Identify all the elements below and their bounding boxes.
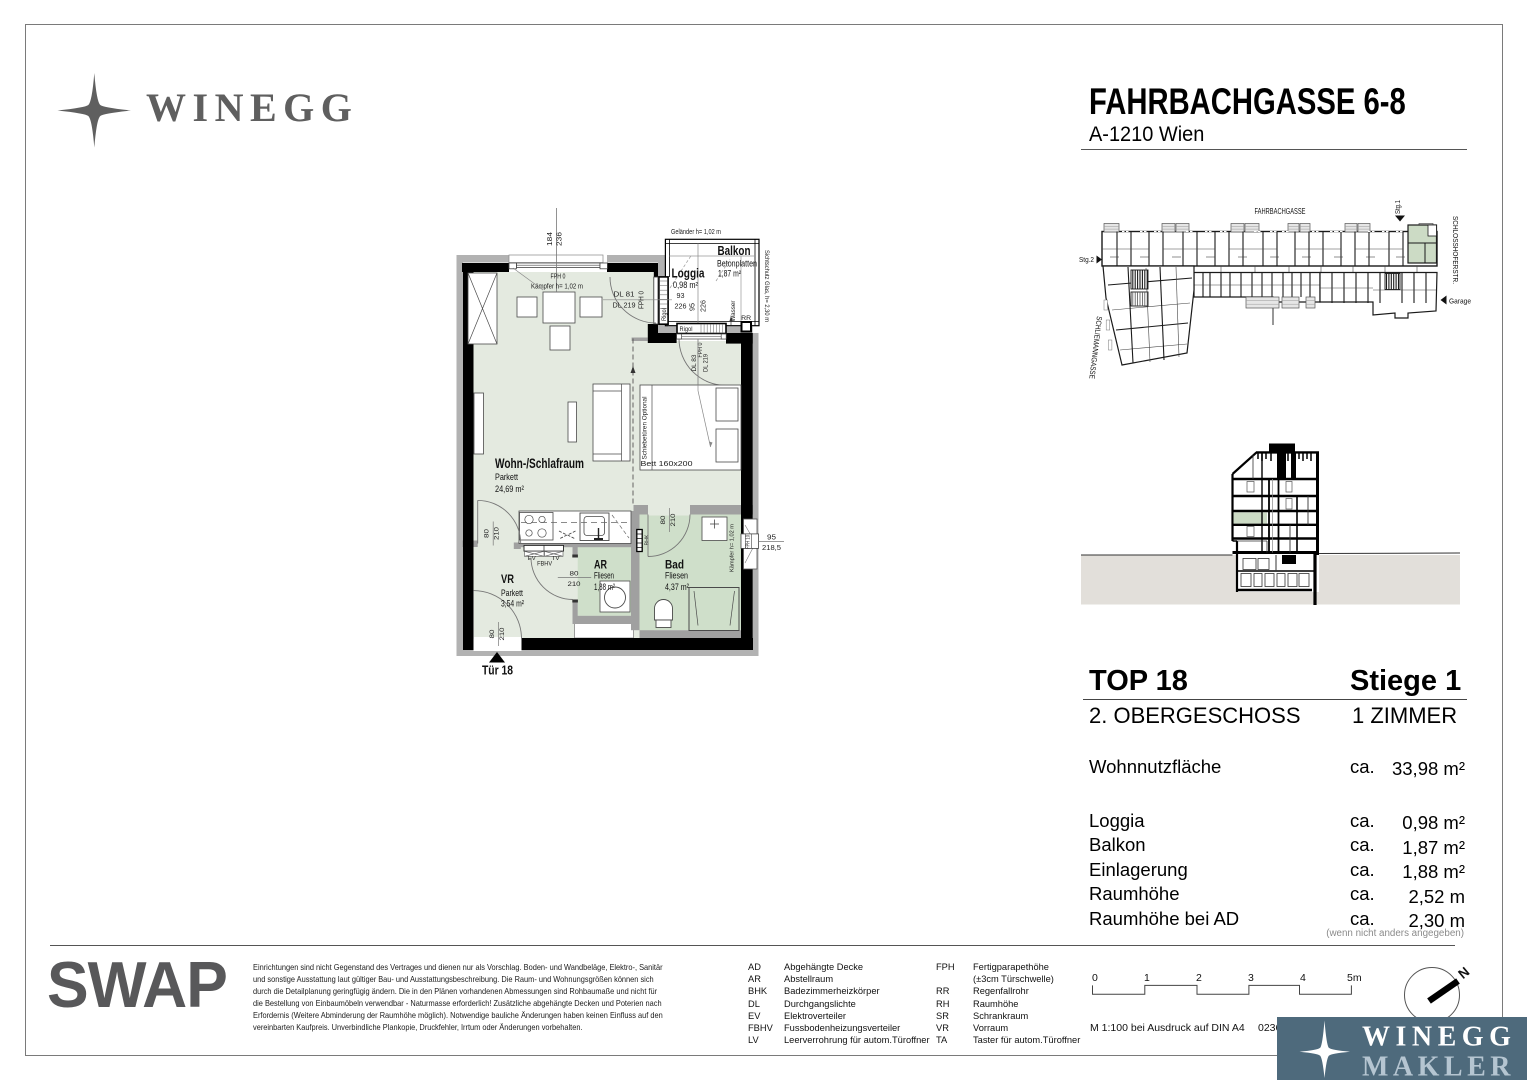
svg-text:95: 95 bbox=[690, 303, 697, 311]
svg-text:DL 219: DL 219 bbox=[613, 303, 636, 310]
svg-text:Loggia: Loggia bbox=[672, 266, 706, 281]
svg-text:218,5: 218,5 bbox=[762, 545, 781, 552]
svg-text:4: 4 bbox=[1300, 972, 1306, 984]
svg-text:226: 226 bbox=[675, 304, 687, 311]
svg-text:Sichtschutz Glas, h= 2,30 m: Sichtschutz Glas, h= 2,30 m bbox=[763, 250, 770, 322]
svg-text:80: 80 bbox=[570, 571, 579, 578]
svg-text:WINEGG: WINEGG bbox=[1362, 1022, 1516, 1053]
svg-text:210: 210 bbox=[499, 627, 506, 640]
svg-text:FBHV: FBHV bbox=[537, 562, 552, 568]
svg-text:Fliesen: Fliesen bbox=[665, 571, 688, 582]
svg-text:RR: RR bbox=[741, 315, 751, 322]
svg-text:Rigol: Rigol bbox=[680, 327, 693, 333]
svg-text:EV: EV bbox=[528, 556, 536, 562]
svg-text:Stg.2: Stg.2 bbox=[1079, 257, 1094, 264]
svg-text:Wasser: Wasser bbox=[731, 301, 737, 322]
svg-text:184: 184 bbox=[547, 232, 554, 246]
svg-text:4,37 m²: 4,37 m² bbox=[665, 582, 689, 593]
svg-text:BHK: BHK bbox=[645, 534, 651, 545]
svg-text:Kämpfer h= 1,02 m: Kämpfer h= 1,02 m bbox=[730, 524, 736, 572]
svg-text:N: N bbox=[1455, 964, 1472, 982]
svg-text:Garage: Garage bbox=[1449, 297, 1471, 306]
svg-text:Bett 160x200: Bett 160x200 bbox=[641, 461, 693, 468]
svg-text:DL 219: DL 219 bbox=[703, 354, 710, 372]
svg-text:80: 80 bbox=[660, 515, 667, 524]
svg-text:226: 226 bbox=[701, 300, 708, 312]
svg-text:210: 210 bbox=[568, 581, 581, 588]
svg-text:2: 2 bbox=[1196, 972, 1202, 984]
svg-text:1,87 m²: 1,87 m² bbox=[718, 269, 741, 279]
svg-text:DL 81: DL 81 bbox=[614, 292, 635, 299]
svg-text:24,69 m²: 24,69 m² bbox=[495, 484, 524, 495]
svg-text:Fliesen: Fliesen bbox=[594, 571, 614, 582]
svg-text:FAHRBACHGASSE: FAHRBACHGASSE bbox=[1255, 207, 1306, 216]
svg-text:Balkon: Balkon bbox=[718, 244, 751, 258]
svg-text:SCHLIEMANNGASSE: SCHLIEMANNGASSE bbox=[1087, 316, 1104, 380]
svg-text:93: 93 bbox=[677, 293, 685, 300]
svg-text:Parkett: Parkett bbox=[495, 472, 518, 483]
svg-text:DL 83: DL 83 bbox=[691, 354, 698, 371]
svg-text:WINEGG: WINEGG bbox=[146, 85, 358, 130]
svg-text:95: 95 bbox=[767, 535, 776, 542]
svg-text:TV: TV bbox=[552, 556, 560, 562]
svg-text:Geländer h= 1,02 m: Geländer h= 1,02 m bbox=[671, 229, 721, 236]
svg-text:3: 3 bbox=[1248, 972, 1254, 984]
svg-text:1,88 m²: 1,88 m² bbox=[594, 582, 615, 593]
svg-text:0: 0 bbox=[1092, 972, 1098, 984]
svg-text:5m: 5m bbox=[1347, 972, 1362, 984]
svg-text:FPH 0: FPH 0 bbox=[639, 291, 646, 309]
svg-text:210: 210 bbox=[494, 527, 501, 540]
svg-text:Wohn-/Schlafraum: Wohn-/Schlafraum bbox=[495, 455, 584, 471]
svg-text:FPH 0: FPH 0 bbox=[551, 274, 566, 281]
svg-text:0,98 m²: 0,98 m² bbox=[673, 280, 698, 290]
svg-text:VR: VR bbox=[501, 574, 515, 586]
svg-text:80: 80 bbox=[484, 529, 491, 538]
svg-text:Schiebetüren Optional: Schiebetüren Optional bbox=[642, 396, 649, 460]
svg-text:80: 80 bbox=[489, 629, 496, 638]
svg-text:210: 210 bbox=[670, 513, 677, 526]
svg-text:FPH 10: FPH 10 bbox=[746, 535, 752, 549]
svg-text:SCHLOSSHOFERSTR.: SCHLOSSHOFERSTR. bbox=[1451, 216, 1460, 284]
svg-text:Parkett: Parkett bbox=[501, 588, 523, 599]
svg-text:MAKLER: MAKLER bbox=[1362, 1052, 1515, 1080]
svg-text:Betonplatten: Betonplatten bbox=[717, 259, 757, 269]
svg-text:Rigol: Rigol bbox=[662, 308, 668, 321]
svg-text:Tür 18: Tür 18 bbox=[482, 663, 513, 678]
svg-text:Stg.1: Stg.1 bbox=[1395, 200, 1402, 214]
svg-text:1: 1 bbox=[1144, 972, 1150, 984]
svg-text:236: 236 bbox=[557, 232, 564, 246]
svg-text:3,54 m²: 3,54 m² bbox=[501, 599, 524, 610]
